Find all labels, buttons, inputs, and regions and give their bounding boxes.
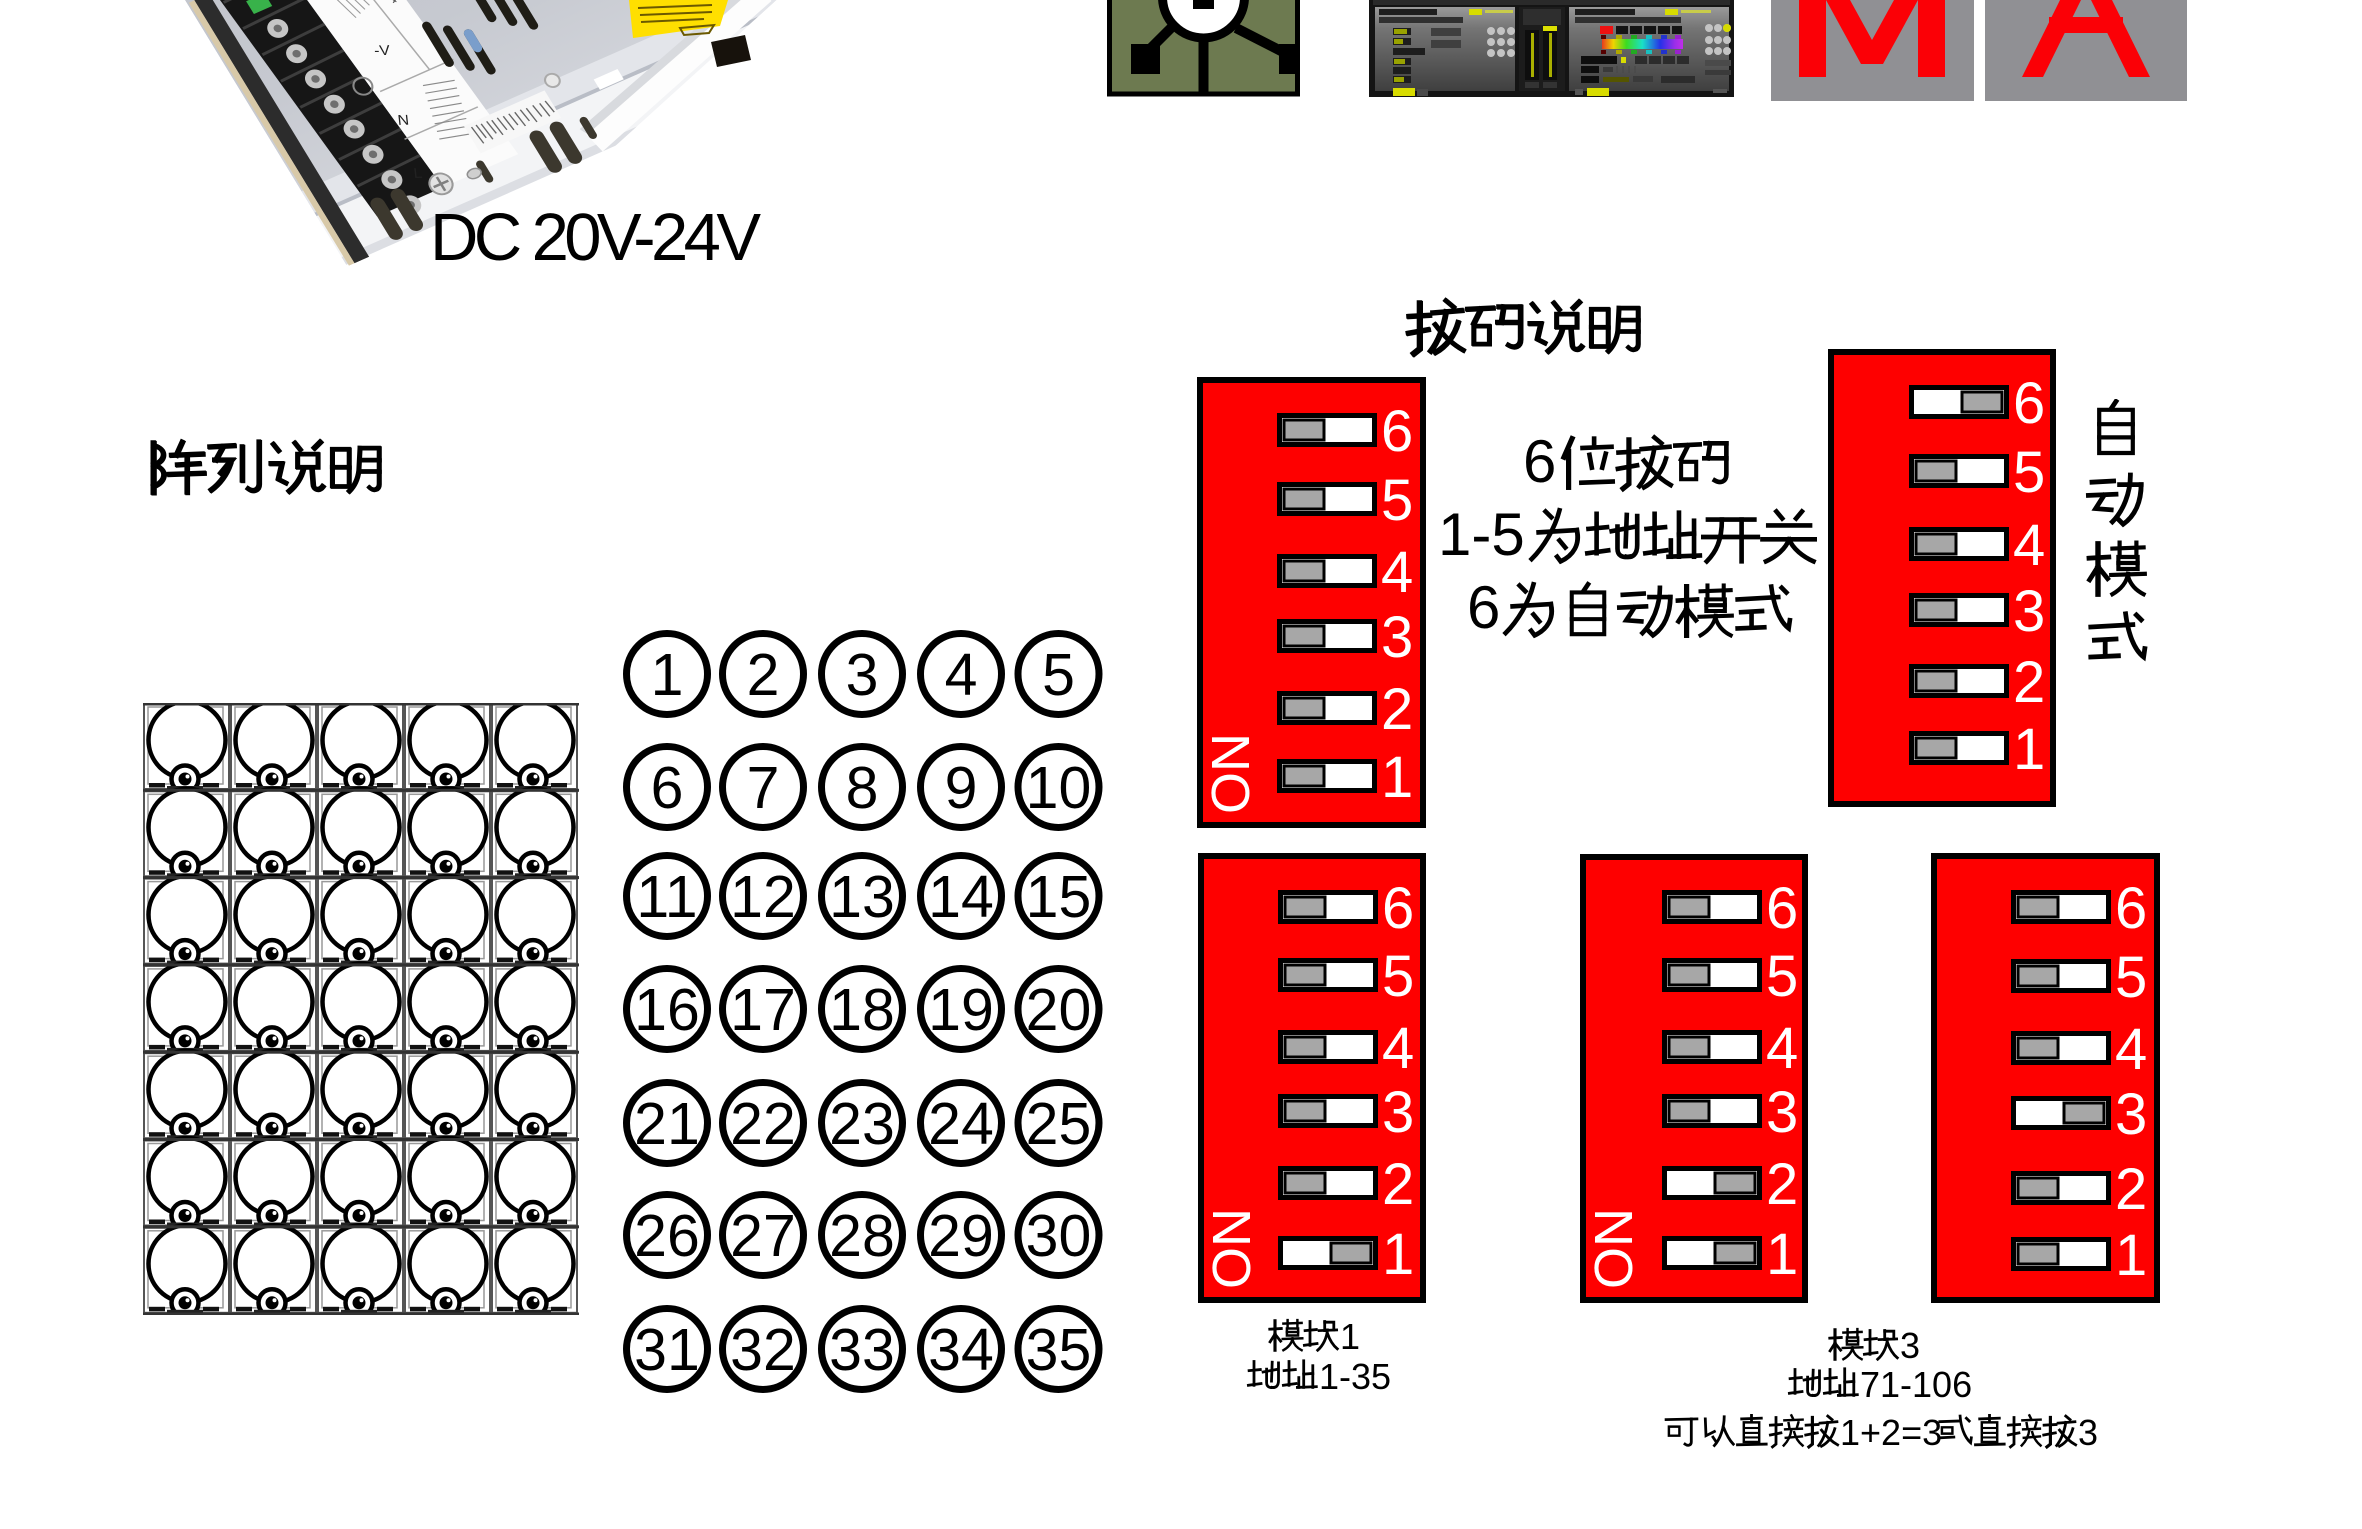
svg-text:11: 11	[636, 864, 697, 930]
svg-text:17: 17	[730, 977, 796, 1043]
svg-text:ON: ON	[1202, 1208, 1262, 1289]
svg-text:5: 5	[1042, 642, 1075, 708]
svg-text:33: 33	[829, 1317, 895, 1383]
svg-text:8: 8	[846, 755, 879, 821]
svg-text:3: 3	[846, 642, 879, 708]
svg-text:2: 2	[1382, 1152, 1414, 1217]
svg-text:1: 1	[2115, 1223, 2147, 1288]
svg-text:26: 26	[634, 1203, 700, 1269]
svg-text:5: 5	[1766, 944, 1798, 1009]
svg-text:31: 31	[634, 1317, 700, 1383]
svg-text:16: 16	[634, 977, 700, 1043]
svg-text:6: 6	[1766, 876, 1798, 941]
svg-text:N: N	[397, 112, 410, 128]
svg-text:2: 2	[1381, 677, 1413, 742]
svg-text:5: 5	[2013, 440, 2045, 505]
svg-text:6: 6	[1382, 876, 1414, 941]
svg-text:27: 27	[730, 1203, 796, 1269]
svg-text:3: 3	[1381, 605, 1413, 670]
svg-text:3: 3	[1382, 1080, 1414, 1145]
svg-text:18: 18	[829, 977, 895, 1043]
svg-text:5: 5	[1381, 468, 1413, 533]
svg-text:4: 4	[945, 642, 978, 708]
svg-text:35: 35	[1026, 1317, 1092, 1383]
svg-text:28: 28	[829, 1203, 895, 1269]
svg-text:14: 14	[928, 864, 994, 930]
svg-text:2: 2	[1766, 1152, 1798, 1217]
svg-text:5: 5	[1382, 944, 1414, 1009]
svg-text:L: L	[413, 165, 423, 181]
svg-text:3: 3	[2078, 1412, 2098, 1453]
svg-text:13: 13	[829, 864, 895, 930]
svg-text:6: 6	[1523, 428, 1556, 495]
svg-text:9: 9	[945, 755, 978, 821]
svg-text:4: 4	[1381, 540, 1413, 605]
svg-text:23: 23	[829, 1091, 895, 1157]
svg-text:3: 3	[2013, 579, 2045, 644]
svg-text:21: 21	[634, 1091, 700, 1157]
svg-text:15: 15	[1026, 864, 1092, 930]
svg-text:ON: ON	[1201, 733, 1261, 814]
svg-text:ON: ON	[1584, 1208, 1644, 1289]
svg-text:6: 6	[651, 755, 684, 821]
svg-text:34: 34	[928, 1317, 994, 1383]
svg-text:1: 1	[1382, 1222, 1414, 1287]
svg-text:4: 4	[1766, 1016, 1798, 1081]
svg-text:6: 6	[2013, 371, 2045, 436]
svg-text:29: 29	[928, 1203, 994, 1269]
svg-text:1: 1	[1381, 745, 1413, 810]
svg-text:3: 3	[1900, 1325, 1920, 1366]
svg-text:25: 25	[1026, 1091, 1092, 1157]
svg-text:1: 1	[2013, 717, 2045, 782]
svg-text:32: 32	[730, 1317, 796, 1383]
svg-text:1+2=3: 1+2=3	[1840, 1412, 1942, 1453]
svg-text:3: 3	[2115, 1082, 2147, 1147]
svg-text:1-5: 1-5	[1438, 501, 1525, 568]
svg-text:24: 24	[928, 1091, 994, 1157]
svg-text:71-106: 71-106	[1860, 1364, 1972, 1405]
svg-text:10: 10	[1026, 755, 1092, 821]
svg-text:4: 4	[1382, 1016, 1414, 1081]
svg-text:4: 4	[2013, 513, 2045, 578]
svg-text:2: 2	[747, 642, 780, 708]
svg-text:19: 19	[928, 977, 994, 1043]
svg-text:22: 22	[730, 1091, 796, 1157]
svg-text:6: 6	[2115, 876, 2147, 941]
svg-text:2: 2	[2013, 650, 2045, 715]
svg-text:20: 20	[1026, 977, 1092, 1043]
svg-text:6: 6	[1467, 574, 1500, 641]
svg-text:1: 1	[1340, 1316, 1360, 1357]
svg-text:1-35: 1-35	[1319, 1356, 1391, 1396]
svg-text:1: 1	[651, 642, 684, 708]
svg-text:30: 30	[1026, 1203, 1092, 1269]
svg-text:7: 7	[747, 755, 780, 821]
svg-text:4: 4	[2115, 1017, 2147, 1082]
svg-text:1: 1	[1766, 1222, 1798, 1287]
svg-text:3: 3	[1766, 1080, 1798, 1145]
svg-text:-V: -V	[373, 43, 390, 59]
svg-text:6: 6	[1381, 399, 1413, 464]
svg-text:2: 2	[2115, 1157, 2147, 1222]
svg-text:12: 12	[730, 864, 796, 930]
svg-text:5: 5	[2115, 945, 2147, 1010]
